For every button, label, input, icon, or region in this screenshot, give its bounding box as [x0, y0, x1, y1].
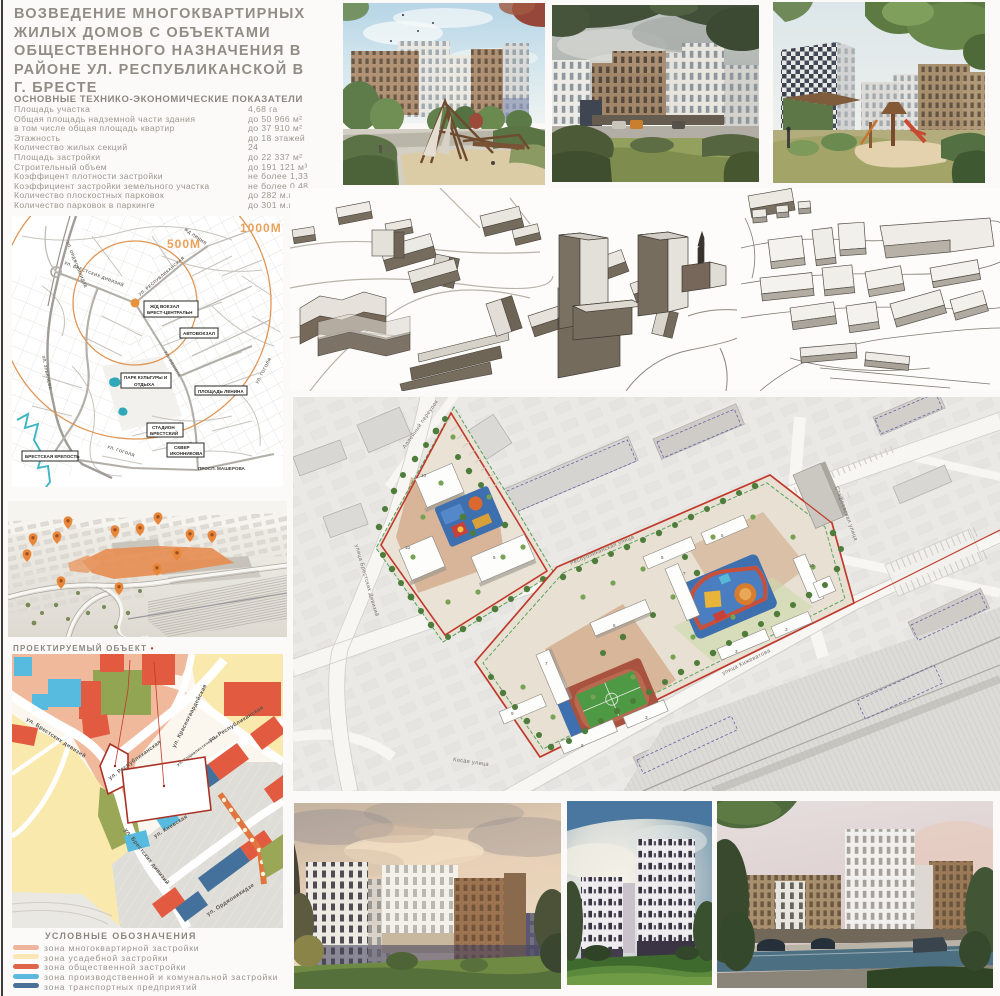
svg-text:6: 6 [581, 743, 584, 748]
svg-text:3: 3 [645, 715, 648, 720]
svg-text:5: 5 [493, 555, 496, 560]
svg-text:ПАРК КУЛЬТУРЫ И: ПАРК КУЛЬТУРЫ И [124, 375, 167, 380]
svg-text:Ж/Д ВОКЗАЛ: Ж/Д ВОКЗАЛ [149, 304, 179, 309]
svg-text:ПРОСП. МАШЕРОВА: ПРОСП. МАШЕРОВА [198, 466, 246, 471]
svg-text:5: 5 [613, 623, 616, 628]
svg-text:СКВЕР: СКВЕР [174, 445, 190, 450]
svg-text:7: 7 [545, 661, 548, 666]
svg-text:СТАДИОН: СТАДИОН [152, 425, 175, 430]
svg-text:АВТОВОКЗАЛ: АВТОВОКЗАЛ [183, 331, 215, 336]
svg-text:3: 3 [735, 649, 738, 654]
svg-text:ПЛОЩАДЬ ЛЕНИНА: ПЛОЩАДЬ ЛЕНИНА [198, 389, 244, 394]
svg-text:5: 5 [721, 533, 724, 538]
svg-text:1000M: 1000M [240, 221, 282, 235]
svg-text:7: 7 [683, 571, 686, 576]
svg-text:БРЕСТСКАЯ КРЕПОСТЬ: БРЕСТСКАЯ КРЕПОСТЬ [25, 454, 80, 459]
svg-text:10: 10 [405, 545, 411, 550]
svg-text:10: 10 [421, 473, 427, 478]
svg-text:10: 10 [809, 563, 815, 568]
svg-text:ИКОННИКОВА: ИКОННИКОВА [170, 451, 203, 456]
svg-text:БРЕСТ-ЦЕНТРАЛЬН: БРЕСТ-ЦЕНТРАЛЬН [147, 310, 193, 315]
svg-text:9: 9 [511, 711, 514, 716]
svg-text:3: 3 [785, 627, 788, 632]
svg-text:БРЕСТСКИЙ: БРЕСТСКИЙ [150, 429, 178, 436]
svg-text:ОТДЫХА: ОТДЫХА [134, 382, 155, 387]
svg-text:5: 5 [661, 555, 664, 560]
